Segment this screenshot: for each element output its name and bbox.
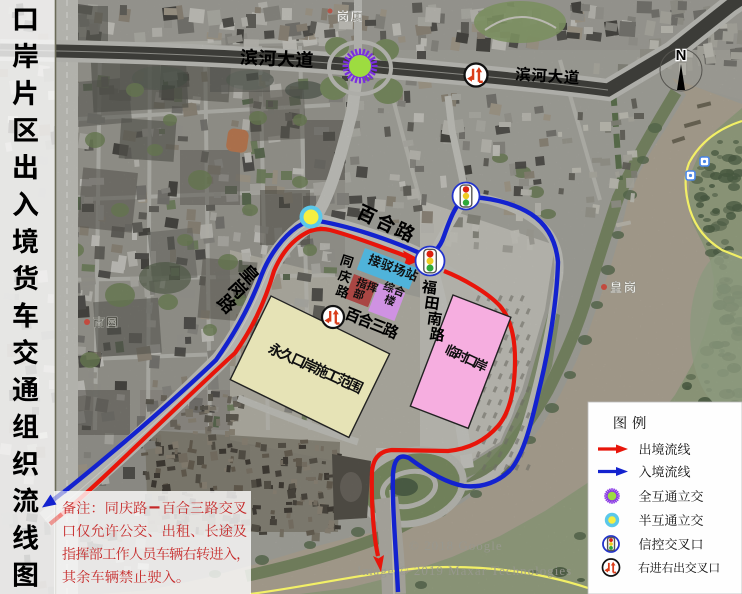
svg-text:© 2018 Google: © 2018 Google [409, 538, 503, 553]
svg-text:N: N [676, 47, 687, 64]
svg-text:Image © 2019 Maxar Technologie: Image © 2019 Maxar Technologies [357, 563, 572, 578]
